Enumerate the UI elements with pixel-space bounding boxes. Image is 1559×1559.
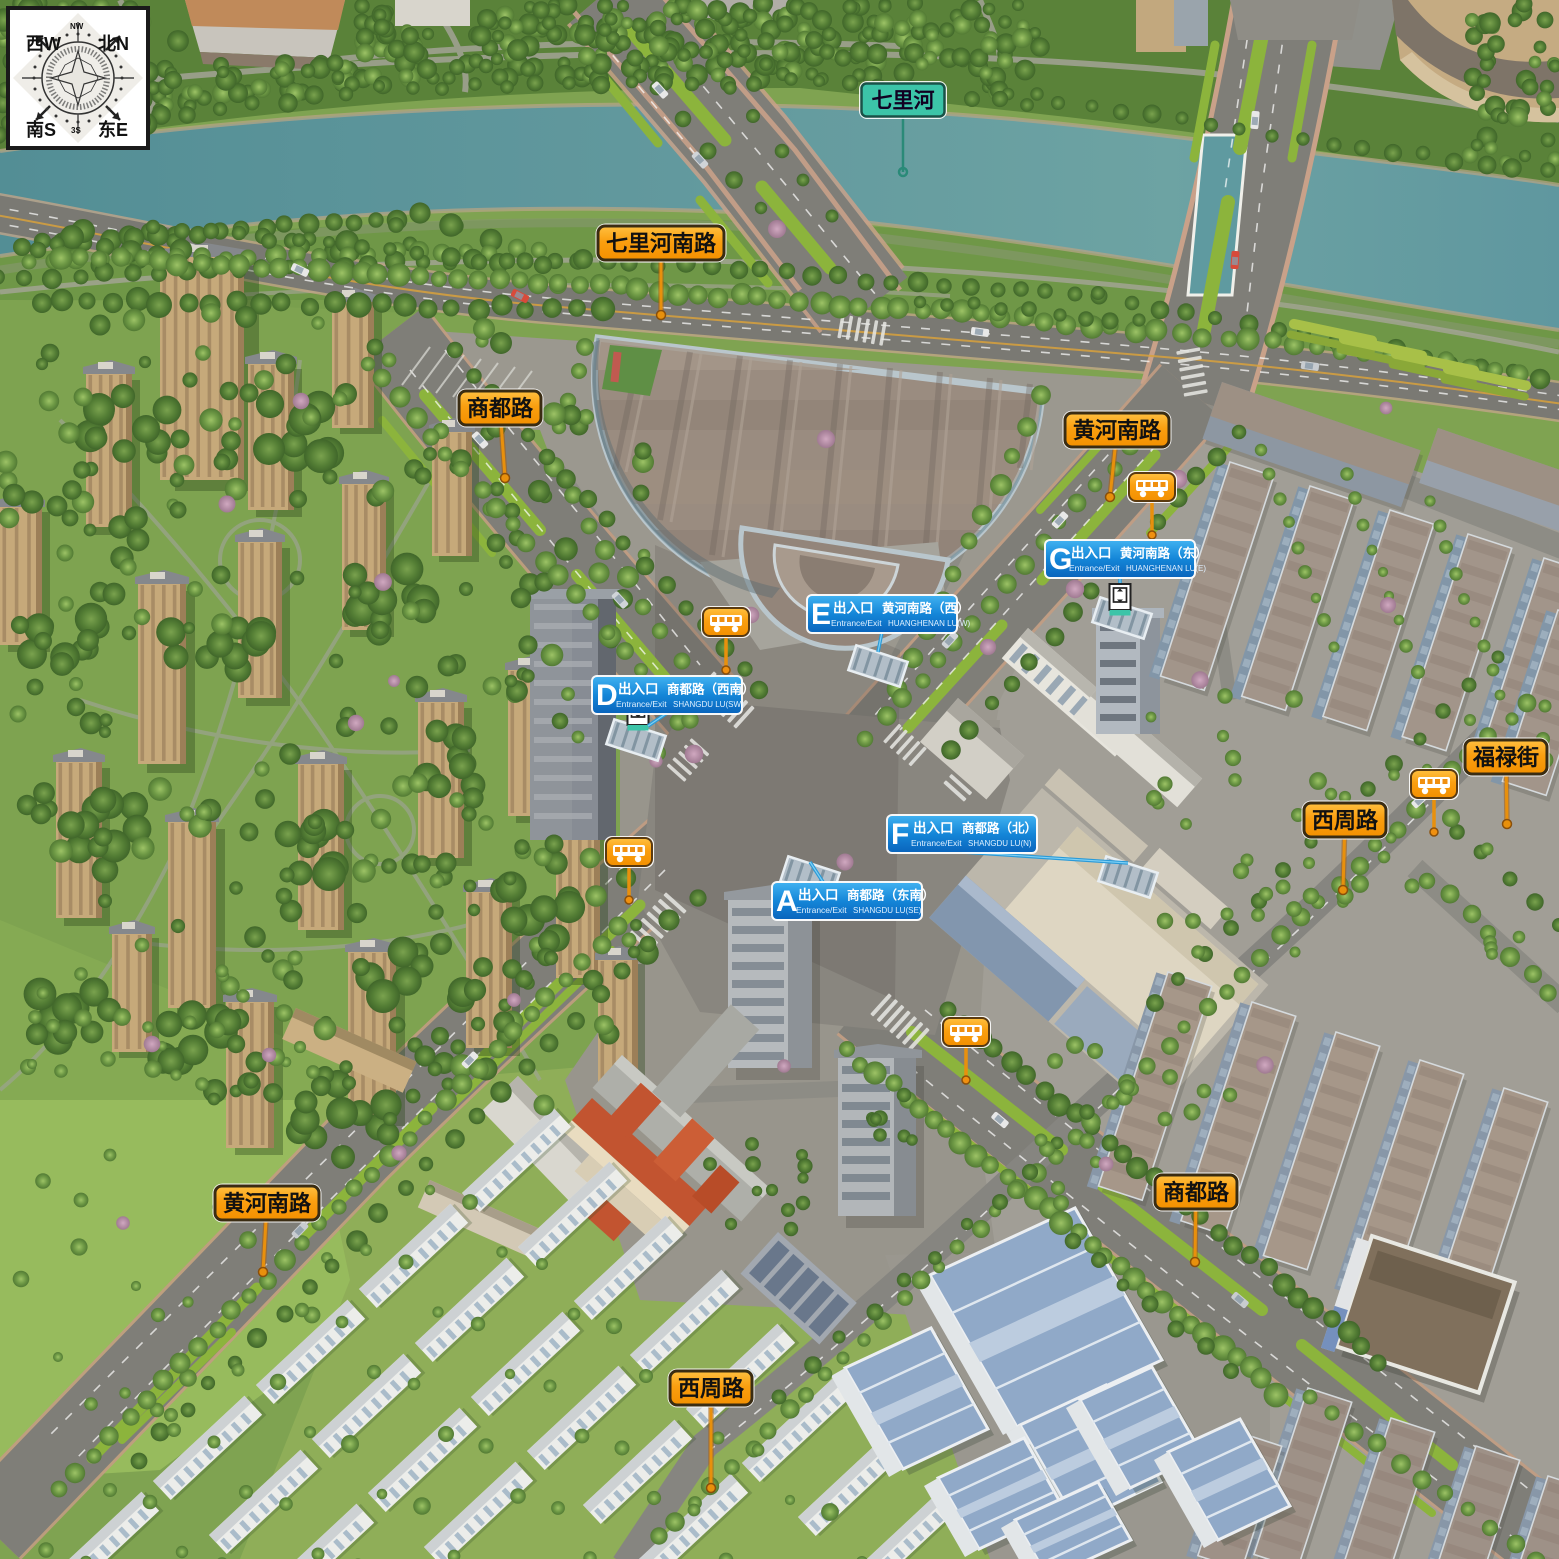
svg-text:出入口: 出入口: [798, 887, 839, 903]
svg-text:商都路（东南）: 商都路（东南）: [847, 888, 935, 903]
svg-text:西周路: 西周路: [678, 1376, 745, 1401]
svg-text:北N: 北N: [98, 34, 129, 54]
svg-text:NW: NW: [70, 22, 84, 31]
svg-text:黄河南路: 黄河南路: [1073, 418, 1162, 443]
svg-text:东E: 东E: [98, 119, 128, 140]
svg-text:3S: 3S: [71, 126, 81, 135]
svg-text:Entrance/Exit: Entrance/Exit: [911, 838, 962, 848]
svg-text:黄河南路: 黄河南路: [223, 1191, 312, 1216]
svg-text:七里河: 七里河: [872, 90, 935, 113]
svg-text:商都路（北）: 商都路（北）: [962, 821, 1037, 836]
svg-text:七里河南路: 七里河南路: [606, 231, 717, 256]
svg-text:西周路: 西周路: [1312, 808, 1379, 833]
svg-text:黄河南路（西）: 黄河南路（西）: [882, 601, 970, 616]
svg-text:Entrance/Exit: Entrance/Exit: [616, 699, 667, 709]
svg-text:Entrance/Exit: Entrance/Exit: [1069, 563, 1120, 573]
svg-text:商都路: 商都路: [467, 396, 534, 421]
svg-text:出入口: 出入口: [913, 820, 954, 836]
svg-text:SHANGDU LU(SW): SHANGDU LU(SW): [673, 700, 744, 709]
svg-text:D: D: [596, 679, 618, 712]
svg-text:出入口: 出入口: [1071, 545, 1112, 561]
svg-text:HUANGHENAN LU(E): HUANGHENAN LU(E): [1126, 564, 1206, 573]
svg-text:出入口: 出入口: [618, 681, 659, 697]
svg-text:商都路（西南）: 商都路（西南）: [667, 682, 755, 697]
svg-text:F: F: [891, 818, 909, 851]
svg-text:HUANGHENAN LU(W): HUANGHENAN LU(W): [888, 619, 971, 628]
svg-text:SHANGDU LU(SE): SHANGDU LU(SE): [853, 906, 922, 915]
svg-text:SHANGDU LU(N): SHANGDU LU(N): [968, 839, 1032, 848]
svg-text:商都路: 商都路: [1163, 1180, 1230, 1205]
svg-text:A: A: [776, 885, 798, 918]
svg-text:黄河南路（东）: 黄河南路（东）: [1120, 546, 1208, 561]
svg-text:福禄街: 福禄街: [1472, 745, 1539, 770]
svg-text:Entrance/Exit: Entrance/Exit: [796, 905, 847, 915]
svg-text:Entrance/Exit: Entrance/Exit: [831, 618, 882, 628]
svg-text:出入口: 出入口: [833, 600, 874, 616]
svg-text:西W: 西W: [26, 34, 61, 54]
svg-text:南S: 南S: [26, 119, 56, 140]
svg-text:E: E: [811, 598, 831, 631]
